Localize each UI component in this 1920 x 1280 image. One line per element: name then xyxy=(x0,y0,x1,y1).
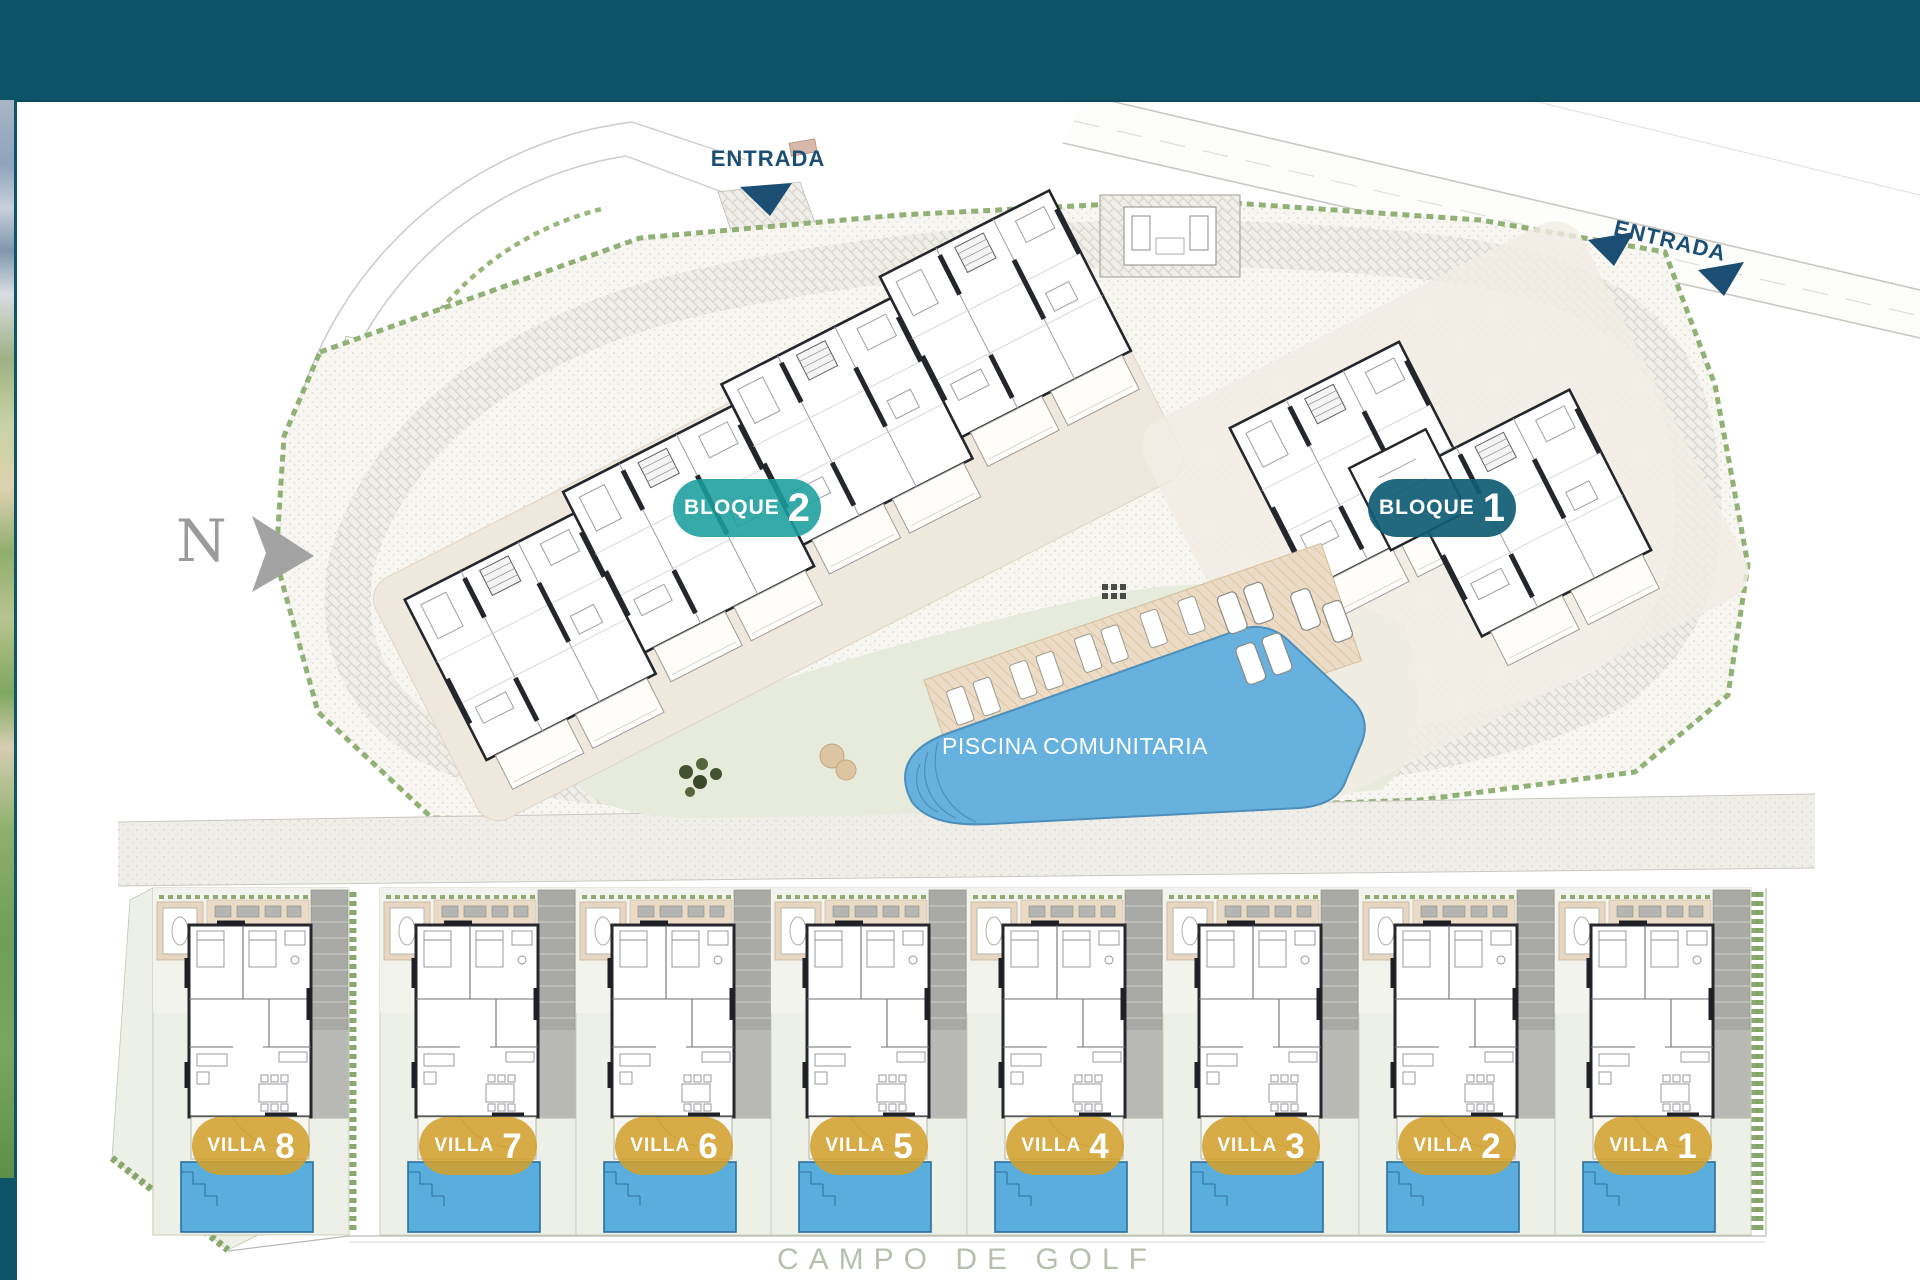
bloque-2-word: BLOQUE xyxy=(684,496,780,520)
villa-4-badge[interactable]: VILLA4 xyxy=(1006,1117,1124,1175)
photo-strip-footer xyxy=(0,1178,14,1280)
pergola-structure xyxy=(1100,195,1240,277)
bloque-2-number: 2 xyxy=(788,488,810,528)
villa-7-badge[interactable]: VILLA7 xyxy=(419,1117,537,1175)
north-indicator: N xyxy=(176,508,306,598)
villas-row xyxy=(112,888,1766,1251)
community-pool-label: PISCINA COMUNITARIA xyxy=(925,733,1225,760)
golf-course-label: CAMPO DE GOLF xyxy=(617,1243,1317,1277)
bloque-1-word: BLOQUE xyxy=(1379,496,1475,520)
bloque-1-badge[interactable]: BLOQUE 1 xyxy=(1368,479,1516,537)
header-bar xyxy=(0,0,1920,102)
entrance-top-label: ENTRADA xyxy=(668,146,868,172)
villa-8-badge[interactable]: VILLA8 xyxy=(192,1117,310,1175)
north-label: N xyxy=(176,512,227,570)
villa-1-badge[interactable]: VILLA1 xyxy=(1594,1117,1712,1175)
villa-6-badge[interactable]: VILLA6 xyxy=(615,1117,733,1175)
site-plan-page: ENTRADA ENTRADA N BLOQUE 2 BLOQUE 1 PISC… xyxy=(0,0,1920,1280)
villa-2-badge[interactable]: VILLA2 xyxy=(1398,1117,1516,1175)
plan-left-border xyxy=(14,100,17,1280)
villa-3-badge[interactable]: VILLA3 xyxy=(1202,1117,1320,1175)
villa-5-badge[interactable]: VILLA5 xyxy=(810,1117,928,1175)
site-plan-drawing xyxy=(0,0,1920,1280)
bloque-1-number: 1 xyxy=(1483,488,1505,528)
golf-aerial-photo-strip xyxy=(0,100,14,1178)
bloque-2-badge[interactable]: BLOQUE 2 xyxy=(673,479,821,537)
